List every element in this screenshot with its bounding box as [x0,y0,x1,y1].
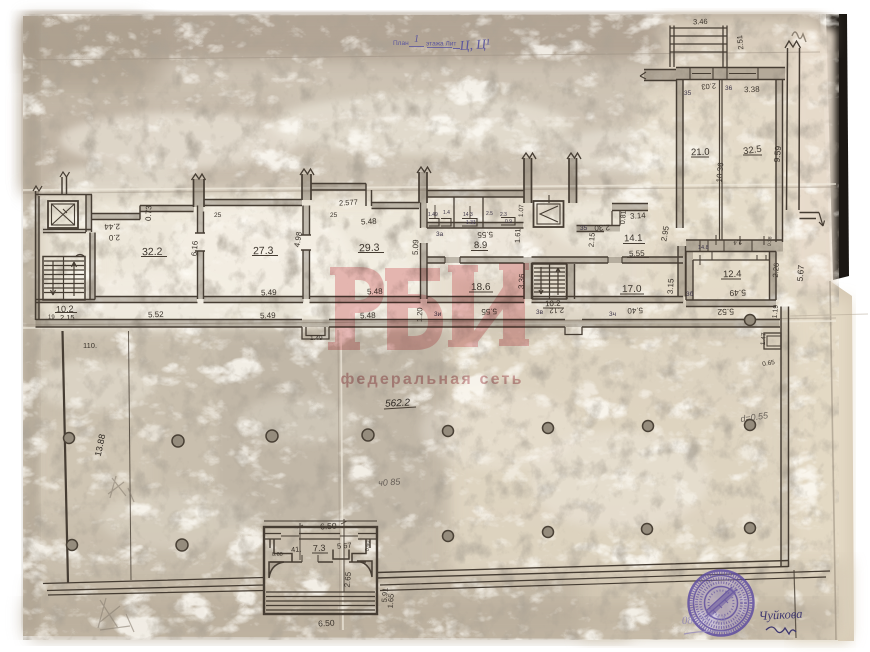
svg-text:1.4: 1.4 [443,210,450,216]
svg-text:0.38: 0.38 [767,236,774,246]
svg-text:5.49: 5.49 [729,288,746,299]
svg-text:2.44: 2.44 [104,222,120,232]
svg-text:10.36: 10.36 [715,162,726,183]
svg-text:3.46: 3.46 [693,17,708,27]
svg-text:0.60: 0.60 [272,552,283,558]
svg-text:0.81: 0.81 [620,210,628,224]
svg-text:2.15: 2.15 [60,313,75,322]
svg-text:1: 1 [414,34,419,45]
svg-text:2.3: 2.3 [500,212,507,218]
svg-text:6.50: 6.50 [318,618,335,629]
svg-text:1.49: 1.49 [310,335,323,342]
svg-text:5 67: 5 67 [337,541,352,551]
svg-text:1.31: 1.31 [466,220,476,226]
svg-text:6.16: 6.16 [190,240,200,257]
svg-text:Ц, Ц¹: Ц, Ц¹ [458,36,490,53]
svg-text:федеральная сеть: федеральная сеть [340,371,523,388]
svg-text:25: 25 [330,212,338,219]
svg-text:14.1: 14.1 [624,233,643,245]
svg-text:5.67: 5.67 [795,264,806,282]
svg-text:5.52: 5.52 [148,310,164,320]
svg-text:0.73: 0.73 [144,205,154,221]
svg-text:35: 35 [684,90,692,97]
svg-text:3.15: 3.15 [666,278,676,295]
svg-text:0.60: 0.60 [365,540,372,551]
svg-text:1.07: 1.07 [518,204,525,217]
svg-text:41.: 41. [291,545,302,555]
svg-text:1.19: 1.19 [772,304,780,318]
svg-text:2.15: 2.15 [587,232,597,247]
svg-text:14 3: 14 3 [463,212,473,218]
svg-text:25: 25 [214,212,222,219]
svg-text:35: 35 [580,225,588,232]
svg-text:5.49: 5.49 [260,311,276,321]
svg-text:3ч: 3ч [609,311,616,318]
svg-text:5.40: 5.40 [627,306,643,316]
svg-text:3в: 3в [536,309,544,316]
svg-text:5.55: 5.55 [477,230,493,240]
svg-text:ч0 85: ч0 85 [378,476,402,488]
svg-text:9.59: 9.59 [772,145,783,163]
svg-text:этажа Лит: этажа Лит [426,41,456,48]
svg-text:Чуйкова: Чуйкова [758,607,802,623]
svg-text:2.12: 2.12 [549,306,564,316]
svg-text:2.03: 2.03 [701,81,716,91]
svg-text:1.47: 1.47 [760,332,768,346]
svg-text:1.65: 1.65 [386,593,396,608]
svg-text:2.65: 2.65 [343,571,353,588]
svg-text:7.3: 7.3 [313,543,326,554]
svg-text:2.30: 2.30 [594,223,610,233]
svg-text:36: 36 [725,85,733,92]
svg-text:3.14: 3.14 [630,211,647,221]
svg-text:2.5: 2.5 [486,211,493,217]
svg-text:5.09: 5.09 [411,239,421,255]
svg-text:5.49: 5.49 [261,288,277,298]
svg-text:3.38: 3.38 [744,85,760,95]
svg-text:3а: 3а [436,231,444,238]
svg-text:19: 19 [48,315,55,321]
svg-text:3б: 3б [686,290,694,298]
svg-text:План: План [393,40,409,47]
svg-text:2.4: 2.4 [732,238,742,245]
svg-text:5.48: 5.48 [361,217,378,227]
svg-text:14.8: 14.8 [698,245,709,251]
svg-text:2.577: 2.577 [339,198,358,208]
svg-text:110.: 110. [83,341,97,350]
svg-text:08. 05. 14: 08. 05. 14 [682,613,727,627]
svg-text:5.52: 5.52 [717,307,734,318]
svg-text:2.26: 2.26 [771,262,781,277]
svg-text:1.49: 1.49 [428,212,438,218]
svg-text:8.9: 8.9 [474,240,487,251]
svg-text:2.0: 2.0 [108,233,120,242]
svg-text:1.61: 1.61 [513,228,523,243]
svg-text:2.51: 2.51 [735,35,745,50]
svg-text:0.9: 0.9 [505,219,512,225]
svg-text:17.0: 17.0 [622,284,642,295]
svg-text:6.50: 6.50 [320,521,337,532]
